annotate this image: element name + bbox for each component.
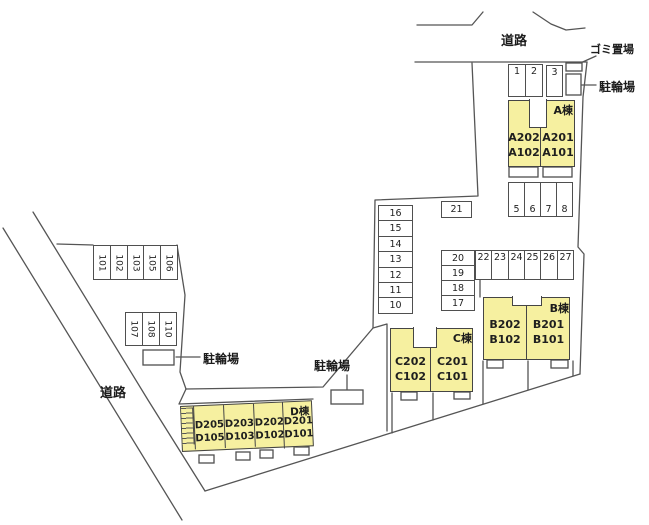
building-b-unit-2: B201 B101: [527, 317, 570, 347]
building-c-entrance-notch: [413, 327, 437, 348]
parking-stall-23: 23: [491, 250, 509, 280]
stall-number: 24: [510, 252, 522, 263]
parking-stall-13: 13: [378, 251, 413, 268]
stall-number: 105: [147, 254, 157, 271]
building-c-unit-1: C202 C102: [389, 354, 432, 384]
stall-number: 10: [389, 300, 401, 311]
parking-stall-22: 22: [475, 250, 492, 280]
parking-stall-10: 10: [378, 297, 413, 314]
stall-number: 18: [452, 283, 464, 294]
parking-stall-2: 2: [525, 64, 543, 97]
stall-number: 15: [389, 223, 401, 234]
unit-label: D201: [284, 414, 314, 428]
unit-label-group: D201 D101: [284, 414, 314, 441]
stall-number: 25: [526, 252, 538, 263]
b-tab-2: [551, 360, 568, 368]
building-d-unit-3: D202 D102: [253, 403, 284, 447]
bike-top-box: [566, 74, 581, 95]
unit-label: D103: [225, 430, 255, 444]
parking-stall-7: 7: [540, 182, 557, 217]
parking-stall-26: 26: [540, 250, 558, 280]
parking-stall-101: 101: [93, 245, 111, 280]
parking-stall-12: 12: [378, 267, 413, 283]
unit-label: A201: [541, 130, 575, 145]
parking-stall-3: 3: [546, 65, 563, 97]
building-a-name: A棟: [544, 102, 573, 118]
stall-number: 101: [97, 254, 107, 271]
site-plan: 道路 道路 ゴミ置場 駐輪場 駐輪場 駐輪場 A棟 A202 A102 A201…: [0, 0, 649, 525]
unit-label: C101: [432, 369, 473, 384]
a-tab-2: [543, 167, 572, 177]
building-d-unit-1: D205 D105: [193, 405, 225, 449]
stall-number: 106: [164, 254, 174, 271]
unit-label: D203: [225, 417, 255, 431]
stall-number: 3: [551, 67, 557, 78]
stall-number: 108: [146, 320, 156, 337]
bike-parking-label-top: 駐輪場: [599, 78, 635, 95]
parking-stall-11: 11: [378, 282, 413, 298]
unit-label: B202: [483, 317, 527, 332]
stall-number: 23: [494, 252, 506, 263]
building-a-unit-1: A202 A102: [507, 130, 541, 160]
building-a-unit-2: A201 A101: [541, 130, 575, 160]
parking-stall-8: 8: [556, 182, 573, 217]
c-lot-left-boundary: [373, 324, 387, 431]
stall-number: 6: [529, 204, 535, 215]
unit-label: D102: [255, 429, 284, 443]
parking-stall-15: 15: [378, 220, 413, 237]
stall-number: 103: [131, 254, 141, 271]
garbage-label: ゴミ置場: [590, 41, 634, 57]
parking-stall-105: 105: [143, 245, 161, 280]
stall-number: 102: [114, 254, 124, 271]
building-d-unit-2: D203 D103: [223, 404, 255, 448]
garbage-box: [566, 63, 582, 71]
parking-stall-17: 17: [441, 295, 475, 311]
c-tab-1: [401, 392, 417, 400]
unit-label: C102: [389, 369, 432, 384]
a-tab-1: [509, 167, 538, 177]
stall-number: 107: [129, 320, 139, 337]
stall-number: 27: [559, 252, 571, 263]
unit-label: C202: [389, 354, 432, 369]
unit-label: A101: [541, 145, 575, 160]
parking-stall-6: 6: [524, 182, 541, 217]
parking-stall-18: 18: [441, 280, 475, 296]
parking-stall-5: 5: [508, 182, 525, 217]
bike-parking-label-mid: 駐輪場: [314, 357, 350, 374]
stall-number: 2: [531, 66, 537, 77]
parking-stall-24: 24: [508, 250, 525, 280]
stall-number: 16: [389, 208, 401, 219]
parking-stall-14: 14: [378, 236, 413, 252]
parking-stall-21: 21: [441, 201, 472, 218]
parking-stall-102: 102: [110, 245, 128, 280]
unit-label: C201: [432, 354, 473, 369]
unit-label: D105: [195, 431, 225, 445]
stall-number: 19: [452, 268, 464, 279]
parking-stall-107: 107: [125, 312, 143, 346]
bike-left-box: [143, 350, 174, 365]
stall-number: 110: [163, 320, 173, 337]
parking-stall-108: 108: [142, 312, 160, 346]
parking-stall-110: 110: [159, 312, 177, 346]
unit-label: B201: [527, 317, 570, 332]
unit-label: D101: [284, 427, 314, 441]
parking-stall-106: 106: [160, 245, 178, 280]
stall-number: 26: [543, 252, 555, 263]
parking-stall-25: 25: [524, 250, 541, 280]
unit-label: D202: [255, 416, 284, 430]
d-tab-1: [199, 455, 214, 463]
building-d-unit-4: D201 D101: [282, 401, 314, 448]
unit-label-group: D205 D105: [195, 418, 225, 445]
stall-number: 14: [389, 239, 401, 250]
lot101-top-boundary: [57, 244, 93, 245]
b-tab-1: [487, 360, 503, 368]
d-tab-3: [260, 450, 273, 458]
stall-number: 1: [514, 66, 520, 77]
building-b-unit-1: B202 B102: [483, 317, 527, 347]
stall-number: 20: [452, 253, 464, 264]
building-d: D棟 D205 D105 D203 D103 D202 D102 D201 D1…: [180, 400, 314, 452]
stall-number: 7: [545, 204, 551, 215]
road-top-east-edge: [533, 12, 585, 30]
unit-label: B101: [527, 332, 570, 347]
bike-mid-box: [331, 390, 363, 404]
unit-label-group: D202 D102: [255, 416, 284, 443]
unit-label: B102: [483, 332, 527, 347]
parking-stall-16: 16: [378, 205, 413, 221]
stall-number: 21: [450, 204, 462, 215]
d-tab-4: [294, 447, 309, 455]
lot101-right-boundary: [177, 245, 186, 389]
building-b-name: B棟: [541, 300, 569, 316]
building-b-entrance-notch: [512, 296, 542, 306]
c-tab-2: [454, 392, 470, 399]
stall-number: 8: [561, 204, 567, 215]
stall-number: 13: [389, 254, 401, 265]
road-label-top: 道路: [501, 30, 527, 49]
road-label-left: 道路: [100, 382, 126, 401]
stall-number: 22: [477, 252, 489, 263]
parking-stall-1: 1: [508, 64, 526, 97]
stall-number: 11: [389, 285, 401, 296]
parking-stall-20: 20: [441, 250, 475, 266]
stall-number: 17: [452, 298, 464, 309]
unit-label-group: D203 D103: [225, 417, 255, 444]
road-top-west-edge: [417, 12, 483, 25]
stall-number: 5: [513, 204, 519, 215]
parking-stall-19: 19: [441, 265, 475, 281]
site-east-boundary: [578, 62, 587, 374]
d-tab-2: [236, 452, 250, 460]
building-c-name: C棟: [445, 330, 472, 346]
unit-label: A102: [507, 145, 541, 160]
building-c-unit-2: C201 C101: [432, 354, 473, 384]
bike-parking-label-left: 駐輪場: [203, 350, 239, 367]
unit-label: D205: [195, 418, 225, 432]
parking-stall-103: 103: [127, 245, 144, 280]
unit-label: A202: [507, 130, 541, 145]
parking-stall-27: 27: [557, 250, 574, 280]
stall-number: 12: [389, 270, 401, 281]
